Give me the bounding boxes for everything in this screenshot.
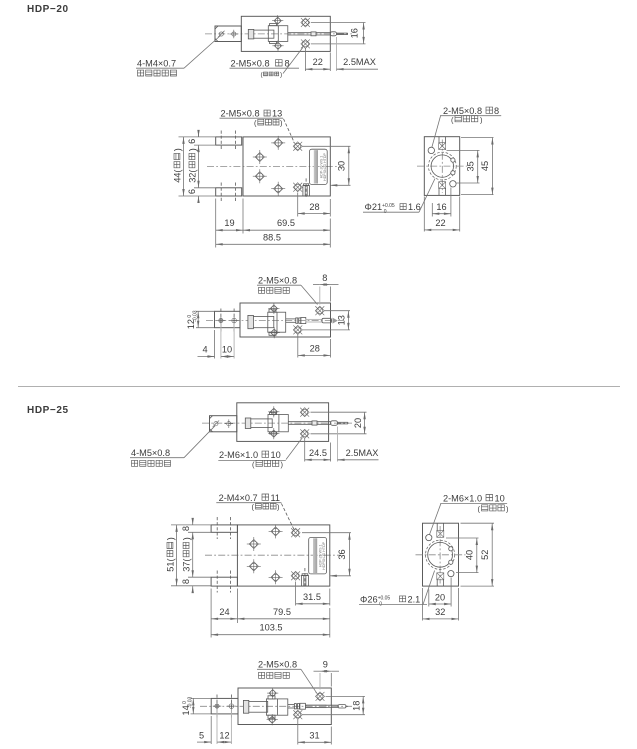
- svg-text:35: 35: [465, 161, 475, 171]
- svg-text:8: 8: [322, 273, 327, 283]
- svg-text:6: 6: [187, 189, 197, 194]
- svg-text:32(: 32(: [187, 170, 197, 183]
- svg-text:HDPSNJD HTDP: HDPSNJD HTDP: [323, 153, 327, 181]
- svg-text:4-M4×0.7: 4-M4×0.7: [137, 59, 176, 69]
- svg-text:2.5MAX: 2.5MAX: [346, 448, 379, 458]
- svg-text:6: 6: [187, 139, 197, 144]
- svg-text:79.5: 79.5: [273, 607, 291, 617]
- svg-text:12: 12: [219, 731, 229, 741]
- svg-text:4-M5×0.8: 4-M5×0.8: [131, 448, 170, 458]
- svg-text:32: 32: [435, 607, 445, 617]
- svg-text:): ): [165, 537, 175, 540]
- svg-text:2-M6×1.0: 2-M6×1.0: [443, 493, 482, 503]
- svg-text:): ): [187, 148, 197, 151]
- svg-text:HDPSNJD HTDP: HDPSNJD HTDP: [322, 541, 326, 569]
- svg-text:44(: 44(: [172, 170, 182, 183]
- svg-text:22: 22: [313, 57, 323, 67]
- svg-text:18: 18: [351, 701, 361, 711]
- svg-text:40: 40: [465, 550, 475, 560]
- svg-text:20: 20: [435, 592, 445, 602]
- svg-text:31.5: 31.5: [303, 592, 321, 602]
- svg-text:HDP−25: HDP−25: [27, 405, 69, 416]
- svg-text:9: 9: [323, 659, 328, 669]
- svg-text:88.5: 88.5: [263, 232, 281, 242]
- svg-text:2.5MAX: 2.5MAX: [343, 57, 376, 67]
- svg-text:10: 10: [495, 493, 505, 503]
- svg-text:51(: 51(: [165, 558, 175, 571]
- svg-text:16: 16: [436, 202, 446, 212]
- svg-text:5: 5: [199, 731, 204, 741]
- svg-text:28: 28: [310, 343, 320, 353]
- svg-text:37(: 37(: [181, 559, 191, 572]
- svg-text:10: 10: [271, 450, 281, 460]
- svg-text:13: 13: [337, 315, 347, 325]
- svg-text:24.5: 24.5: [309, 448, 327, 458]
- svg-text:): ): [172, 148, 182, 151]
- svg-text:103.5: 103.5: [260, 623, 283, 633]
- svg-text:HDP−20: HDP−20: [27, 4, 69, 15]
- svg-text:13: 13: [272, 109, 282, 119]
- svg-text:2-M5×0.8: 2-M5×0.8: [231, 59, 270, 69]
- svg-text:36: 36: [337, 549, 347, 559]
- svg-text:11: 11: [271, 493, 281, 503]
- svg-text:2.1: 2.1: [408, 594, 421, 604]
- svg-text:2-M5×0.8: 2-M5×0.8: [258, 276, 297, 286]
- svg-text:28: 28: [309, 202, 319, 212]
- svg-text:8: 8: [181, 526, 191, 531]
- svg-text:31: 31: [309, 730, 319, 740]
- svg-text:24: 24: [219, 607, 229, 617]
- svg-text:20: 20: [353, 418, 363, 428]
- svg-text:19: 19: [224, 218, 234, 228]
- svg-text:): ): [280, 71, 282, 78]
- svg-text:2-M6×1.0: 2-M6×1.0: [219, 450, 258, 460]
- svg-text:30: 30: [337, 161, 347, 171]
- svg-text:4: 4: [202, 345, 207, 355]
- svg-text:52: 52: [480, 550, 490, 560]
- svg-text:10: 10: [222, 345, 232, 355]
- svg-text:): ): [181, 537, 191, 540]
- svg-text:16: 16: [350, 28, 360, 38]
- svg-text:2-M4×0.7: 2-M4×0.7: [219, 493, 258, 503]
- svg-text:8: 8: [494, 106, 499, 116]
- svg-text:2-M5×0.8: 2-M5×0.8: [258, 660, 297, 670]
- svg-text:1.6: 1.6: [408, 202, 421, 212]
- svg-text:69.5: 69.5: [277, 218, 295, 228]
- svg-text:2-M5×0.8: 2-M5×0.8: [221, 109, 260, 119]
- svg-text:8: 8: [285, 59, 290, 69]
- svg-text:45: 45: [480, 161, 490, 171]
- svg-text:22: 22: [435, 218, 445, 228]
- svg-text:2-M5×0.8: 2-M5×0.8: [443, 106, 482, 116]
- svg-text:8: 8: [181, 579, 191, 584]
